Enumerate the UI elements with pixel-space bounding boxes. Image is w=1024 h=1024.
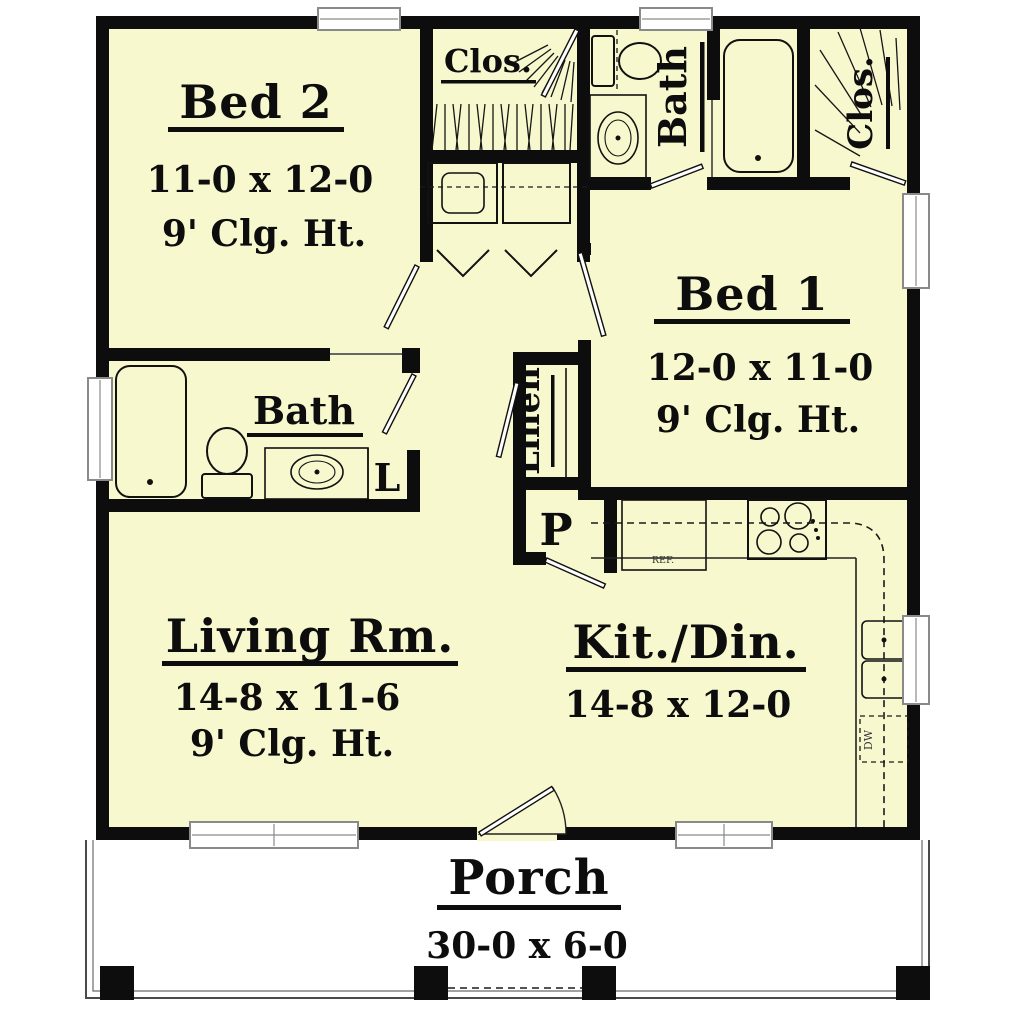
wall-bed1-south	[578, 487, 907, 500]
porch-label-underline	[437, 905, 621, 910]
window-kitchen-right	[903, 616, 929, 704]
window-bed1-right	[903, 194, 929, 288]
exterior-wall-top	[96, 16, 920, 29]
dishwasher-label: DW	[862, 729, 875, 750]
wall-closet-shelf	[433, 150, 577, 163]
hall-closet-underline	[441, 80, 536, 84]
bed1-closet-underline	[886, 57, 890, 149]
wall-mainbath-northeast-stub	[402, 348, 420, 373]
linen-cabinet-label: L	[374, 455, 401, 500]
bed1-ceiling: 9' Clg. Ht.	[656, 399, 860, 441]
linen-label: Linen	[508, 367, 548, 475]
kitchen-dims: 14-8 x 12-0	[565, 684, 792, 726]
hallbath-tub-drain	[755, 155, 761, 161]
range-knob	[814, 528, 818, 532]
kitchen-sink-drain	[882, 638, 887, 643]
wall-tub-closet-divider	[797, 29, 810, 177]
hallbath-sink-drain	[616, 136, 621, 141]
range-knob	[816, 536, 820, 540]
hallbath-label-underline	[700, 42, 705, 152]
exterior-wall-right	[907, 16, 920, 840]
pantry-label: P	[539, 505, 572, 556]
bed1-closet-label: Clos.	[841, 56, 881, 150]
mainbath-tub-drain	[147, 479, 153, 485]
wall-mainbath-north	[96, 348, 330, 361]
wall-linen-south	[513, 477, 591, 490]
window-kitchen-bottom	[676, 822, 772, 848]
bed2-dims: 11-0 x 12-0	[147, 159, 374, 201]
bed1-label-underline	[654, 319, 850, 324]
bed1-label: Bed 1	[675, 267, 828, 321]
porch-column	[896, 966, 930, 1000]
fridge-label: REF.	[652, 555, 674, 566]
kitchen-label-underline	[566, 667, 806, 672]
wall-laundry-east	[577, 29, 590, 262]
kitchen-label: Kit./Din.	[572, 615, 799, 669]
window-hallbath-top	[640, 8, 712, 30]
window-bed2-top	[318, 8, 400, 30]
wall-hallbath-south-left	[590, 177, 651, 190]
range-knob	[811, 519, 815, 523]
living-dims: 14-8 x 11-6	[174, 677, 401, 719]
window-living-bottom	[190, 822, 358, 848]
linen-label-underline	[551, 375, 555, 467]
porch-column	[100, 966, 134, 1000]
mainbath-label: Bath	[253, 388, 355, 433]
wall-hallbath-south-right	[707, 177, 850, 190]
bed2-label: Bed 2	[179, 75, 332, 129]
porch-label: Porch	[448, 850, 609, 906]
living-label: Living Rm.	[166, 609, 455, 663]
hall-closet-label: Clos.	[444, 42, 532, 80]
porch-dims: 30-0 x 6-0	[426, 925, 628, 967]
wall-hallbath-tub-divider	[707, 29, 720, 100]
living-label-underline	[162, 661, 458, 666]
mainbath-sink-drain	[315, 470, 320, 475]
kitchen-sink-drain	[882, 677, 887, 682]
window-mainbath-left	[88, 378, 112, 480]
hallbath-label: Bath	[650, 46, 695, 148]
bed2-ceiling: 9' Clg. Ht.	[162, 213, 366, 255]
porch-column	[582, 966, 616, 1000]
porch-column	[414, 966, 448, 1000]
mainbath-label-underline	[247, 433, 363, 437]
wall-bed2-east	[420, 29, 433, 262]
floor-plan-page: Porch 30-0 x 6-0	[0, 0, 1024, 1024]
wall-linen-north	[513, 352, 591, 365]
wall-pantry-east	[604, 487, 617, 573]
bed2-label-underline	[168, 127, 344, 132]
floor-plan-drawing: Porch 30-0 x 6-0	[0, 0, 1024, 1024]
living-ceiling: 9' Clg. Ht.	[190, 723, 394, 765]
wall-mainbath-south	[96, 499, 420, 512]
bed1-dims: 12-0 x 11-0	[647, 347, 874, 389]
mainbath-toilet-tank-icon	[202, 474, 252, 498]
